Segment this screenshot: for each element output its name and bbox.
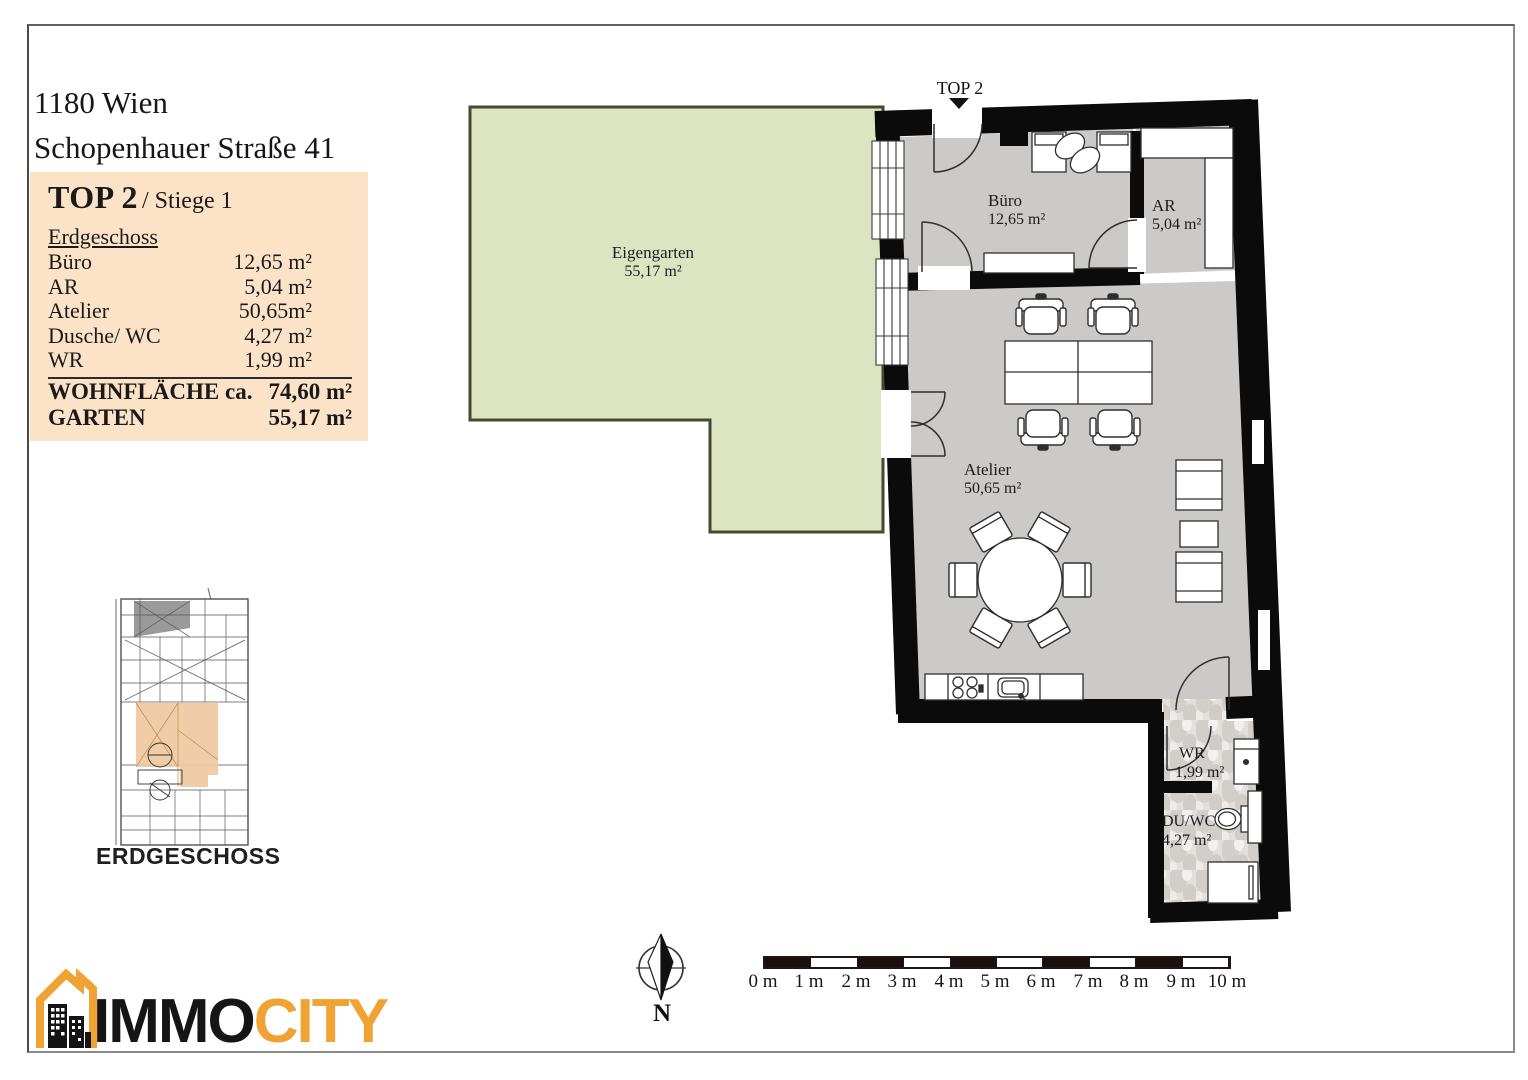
room-name: AR (1152, 196, 1201, 215)
unit-title: TOP 2 (48, 179, 138, 215)
room-area: 1,99 m² (244, 348, 312, 373)
room-label-atelier: Atelier 50,65 m² (964, 460, 1021, 498)
desk-icon (1005, 341, 1152, 404)
bath-doorway-floor (1163, 699, 1227, 723)
logo-wordmark: IMMOCITY (93, 994, 387, 1050)
total-area: 55,17 m² (268, 405, 352, 431)
room-name: Atelier (964, 460, 1021, 479)
room-area: 12,65 m² (988, 210, 1045, 229)
room-name: DU/WC (1162, 812, 1215, 831)
room-row: Atelier 50,65m² (48, 299, 352, 324)
total-label: GARTEN (48, 405, 146, 431)
room-row: Büro 12,65 m² (48, 250, 352, 275)
window-icon (876, 259, 908, 365)
right-wall-notch (1252, 420, 1264, 464)
wall-top (875, 112, 1252, 124)
sideboard-icon (984, 253, 1074, 273)
window-icon (872, 141, 904, 239)
scale-bar (763, 956, 1231, 969)
ar-wardrobe-icon (1205, 158, 1233, 268)
right-wall-notch (1258, 610, 1270, 670)
room-label-buero: Büro 12,65 m² (988, 191, 1045, 229)
armchair-icon (1176, 460, 1222, 510)
dining-chair-icon (1063, 563, 1091, 597)
logo-word-immo: IMMO (93, 987, 254, 1056)
floor-plan-page: 1180 Wien Schopenhauer Straße 41 TOP 2 /… (0, 0, 1528, 1080)
address-line-2: Schopenhauer Straße 41 (34, 125, 335, 170)
info-title-row: TOP 2 / Stiege 1 (48, 178, 352, 223)
room-area: 5,04 m² (244, 275, 312, 300)
office-chair-icon (1018, 410, 1068, 450)
armchair-icon (1176, 552, 1222, 602)
scale-segment (951, 958, 996, 967)
shower-icon (1208, 862, 1258, 903)
room-label: WR (48, 348, 83, 373)
scale-segment (765, 958, 810, 967)
overview-caption: ERDGESCHOSS (96, 843, 244, 870)
office-chair-icon (1016, 294, 1066, 334)
room-name: Büro (988, 191, 1045, 210)
room-label: Büro (48, 250, 92, 275)
room-area: 50,65m² (239, 299, 312, 324)
room-area: 4,27 m² (1162, 831, 1215, 850)
garden-area (470, 107, 883, 532)
wall-top-jog (1000, 122, 1028, 146)
buero-atelier-door-gap (918, 266, 970, 290)
room-label: AR (48, 275, 79, 300)
total-area: 74,60 m² (268, 379, 352, 405)
buero-ar-door-gap (1128, 218, 1146, 272)
bath-shelf-icon (1248, 791, 1262, 843)
unit-info-box: TOP 2 / Stiege 1 Erdgeschoss Büro 12,65 … (30, 172, 368, 441)
floor-name: Erdgeschoss (48, 224, 352, 250)
scale-tick-label: 10 m (1197, 971, 1257, 993)
room-name: WR (1179, 744, 1224, 763)
room-area: 5,04 m² (1152, 215, 1201, 234)
scale-segment (903, 958, 950, 967)
room-area: 4,27 m² (244, 324, 312, 349)
immocity-logo-icon (40, 974, 93, 1048)
address-line-1: 1180 Wien (34, 80, 335, 125)
room-label-duwc: DU/WC 4,27 m² (1162, 812, 1215, 850)
washing-machine-icon (1234, 739, 1259, 784)
room-area: 12,65 m² (233, 250, 312, 275)
logo-word-city: CITY (254, 987, 387, 1056)
room-label: Dusche/ WC (48, 324, 161, 349)
entrance-label: TOP 2 (925, 78, 995, 99)
room-area: 1,99 m² (1175, 763, 1224, 782)
scale-segment (1043, 958, 1088, 967)
ar-wardrobe-icon (1141, 128, 1233, 158)
scale-segment (1182, 958, 1229, 967)
property-address: 1180 Wien Schopenhauer Straße 41 (34, 80, 335, 170)
scale-segment (1136, 958, 1181, 967)
wall-bath-top-stub (1226, 706, 1274, 708)
toilet-icon (1215, 806, 1252, 832)
wall-bath-bottom (1150, 909, 1278, 913)
round-table-icon (978, 538, 1062, 622)
scale-segment (996, 958, 1043, 967)
scale-segment (858, 958, 903, 967)
compass-icon (636, 934, 686, 1000)
office-chair-icon (1090, 410, 1140, 450)
room-label-eigengarten: Eigengarten 55,17 m² (588, 243, 718, 281)
scale-segment (810, 958, 857, 967)
unit-subtitle: / Stiege 1 (142, 188, 233, 214)
room-label-wr: WR 1,99 m² (1179, 744, 1224, 782)
overview-plan (116, 588, 248, 845)
total-row: WOHNFLÄCHE ca. 74,60 m² (48, 379, 352, 405)
room-row: AR 5,04 m² (48, 275, 352, 300)
buero-chair-icon (1097, 132, 1131, 172)
side-table-icon (1180, 521, 1218, 547)
dining-chair-icon (949, 563, 977, 597)
room-name: Eigengarten (588, 243, 718, 262)
compass-north-label: N (643, 1000, 681, 1028)
total-label: WOHNFLÄCHE ca. (48, 379, 252, 405)
room-area: 55,17 m² (588, 262, 718, 281)
scale-segment (1089, 958, 1136, 967)
room-label-ar: AR 5,04 m² (1152, 196, 1201, 234)
room-label: Atelier (48, 299, 109, 324)
room-row: Dusche/ WC 4,27 m² (48, 324, 352, 349)
total-row: GARTEN 55,17 m² (48, 405, 352, 431)
french-door-gap (881, 390, 911, 458)
room-row: WR 1,99 m² (48, 348, 352, 373)
stove-burner-icon (953, 677, 963, 687)
room-area: 50,65 m² (964, 479, 1021, 498)
kitchen-counter-icon (925, 674, 1083, 702)
office-chair-icon (1088, 294, 1138, 334)
